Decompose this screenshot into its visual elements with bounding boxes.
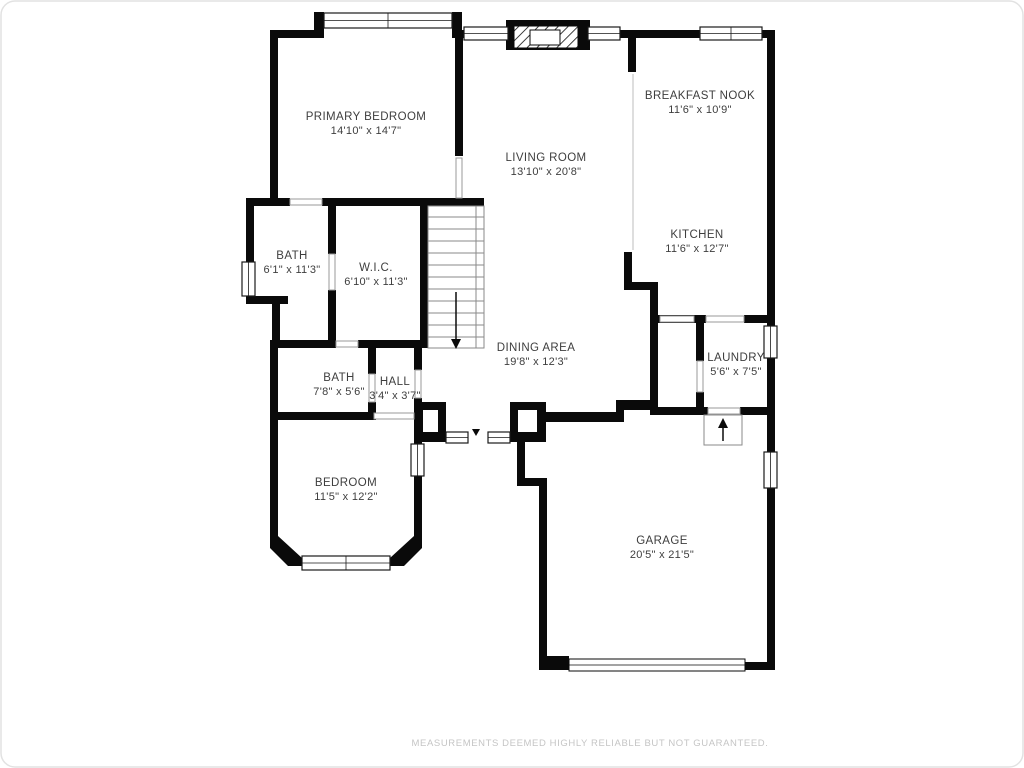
room-label-primary-bedroom: PRIMARY BEDROOM [306,111,427,123]
room-dims-laundry: 5'6" x 7'5" [710,366,761,378]
room-dims-wic: 6'10" x 11'3" [344,276,407,288]
room-dims-bath-hall: 7'8" x 5'6" [313,386,364,398]
room-label-garage: GARAGE [636,535,688,547]
window-living-room-left [464,27,508,40]
entry-pillar-core-right [518,410,537,432]
room-label-bath-primary: BATH [276,250,307,262]
window-laundry [764,326,777,358]
room-label-dining-area: DINING AREA [497,342,576,354]
room-dims-kitchen: 11'6" x 12'7" [665,243,728,255]
room-dims-primary-bedroom: 14'10" x 14'7" [331,125,402,137]
window-bay-primary-bedroom [324,13,452,28]
room-dims-living-room: 13'10" x 20'8" [511,166,582,178]
room-dims-bedroom: 11'5" x 12'2" [314,491,377,503]
fireplace [506,20,590,50]
staircase [428,206,484,349]
entry-pillar-core-left [423,410,438,432]
room-label-laundry: LAUNDRY [707,352,765,364]
room-label-hall: HALL [380,376,411,388]
window-breakfast-nook [700,27,762,40]
room-dims-hall: 3'4" x 3'7" [369,390,420,402]
door-openings [290,158,744,419]
room-dims-bath-primary: 6'1" x 11'3" [264,264,321,276]
disclaimer-text: MEASUREMENTS DEEMED HIGHLY RELIABLE BUT … [412,738,769,749]
room-label-living-room: LIVING ROOM [505,152,586,164]
window-living-room-right [588,27,620,40]
window-bedroom-side [411,444,424,476]
garage-entry-step [704,415,742,445]
room-label-breakfast-nook: BREAKFAST NOOK [645,90,755,102]
window-garage-right [764,452,777,488]
room-label-kitchen: KITCHEN [670,229,723,241]
room-dims-garage: 20'5" x 21'5" [630,549,694,561]
room-label-wic: W.I.C. [359,262,393,274]
window-bedroom-bay [302,556,390,570]
window-entry-sidelite-right [488,432,510,443]
room-label-bath-hall: BATH [323,372,354,384]
image-border [1,1,1023,767]
room-dims-dining-area: 19'8" x 12'3" [504,356,568,368]
window-bath-primary [242,262,255,296]
window-entry-sidelite-left [446,432,468,443]
floor-plan-page: PRIMARY BEDROOM 14'10" x 14'7" LIVING RO… [0,0,1024,768]
room-dims-breakfast-nook: 11'6" x 10'9" [668,104,731,116]
garage-door [569,659,745,671]
room-label-bedroom: BEDROOM [315,477,377,489]
floor-plan: PRIMARY BEDROOM 14'10" x 14'7" LIVING RO… [0,0,1024,768]
front-entry-arrow [472,429,480,436]
